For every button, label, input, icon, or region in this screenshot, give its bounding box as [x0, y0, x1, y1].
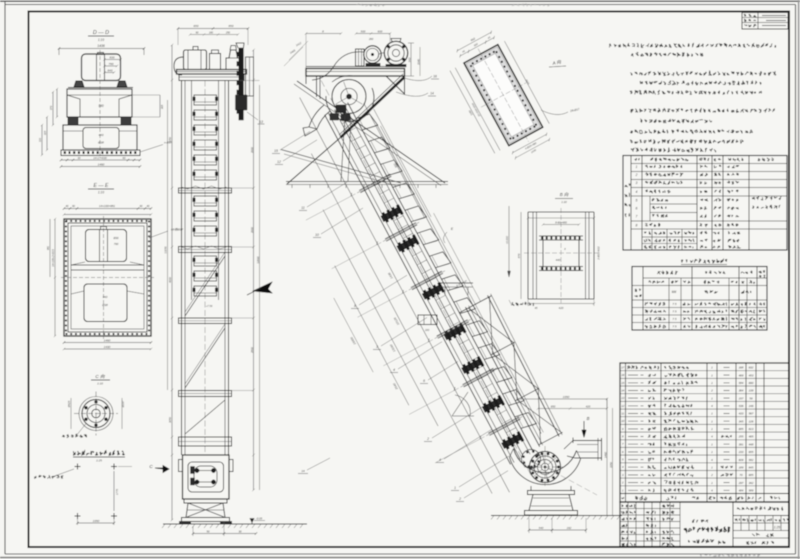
svg-text:180: 180 — [209, 32, 214, 35]
svg-text:139: 139 — [749, 389, 754, 393]
svg-text:1050: 1050 — [563, 395, 570, 399]
svg-text:189: 189 — [739, 465, 744, 469]
svg-text:940: 940 — [98, 104, 104, 108]
svg-text:7.5: 7.5 — [672, 302, 677, 306]
svg-text:15: 15 — [621, 381, 625, 385]
svg-text:640: 640 — [107, 69, 112, 73]
svg-text:110: 110 — [38, 137, 42, 142]
svg-text:433: 433 — [739, 412, 744, 416]
svg-text:2: 2 — [621, 481, 624, 485]
svg-text:255: 255 — [738, 435, 744, 439]
svg-text:315: 315 — [43, 130, 47, 135]
svg-text:2800: 2800 — [250, 347, 254, 354]
svg-text:685: 685 — [749, 473, 754, 477]
svg-text:1: 1 — [636, 165, 638, 169]
svg-text:14×100=981: 14×100=981 — [99, 204, 116, 208]
svg-text:16: 16 — [621, 373, 625, 377]
svg-text:15: 15 — [274, 149, 278, 153]
svg-text:567: 567 — [749, 412, 754, 416]
svg-text:500: 500 — [361, 30, 366, 34]
svg-text:8-60=480: 8-60=480 — [555, 221, 567, 225]
svg-text:+7.56: +7.56 — [206, 304, 213, 308]
svg-text:1775: 1775 — [115, 488, 119, 495]
svg-text:440: 440 — [98, 133, 103, 137]
svg-text:830: 830 — [109, 56, 114, 60]
svg-text:59: 59 — [749, 396, 753, 400]
svg-text:30: 30 — [238, 530, 242, 534]
svg-text:Ø425: Ø425 — [67, 400, 71, 408]
svg-text:345: 345 — [739, 419, 744, 423]
svg-text:14×100+2×93.5: 14×100+2×93.5 — [52, 249, 55, 267]
svg-text:440: 440 — [556, 258, 561, 262]
svg-text:2: 2 — [426, 437, 429, 441]
svg-text:1:25: 1:25 — [96, 459, 102, 463]
svg-text:1490: 1490 — [104, 339, 111, 343]
svg-text:609: 609 — [739, 458, 744, 462]
svg-text:kW: kW — [672, 290, 677, 294]
svg-text:14: 14 — [430, 92, 434, 96]
svg-text:1050: 1050 — [609, 462, 613, 468]
svg-text:8: 8 — [636, 224, 638, 228]
svg-text:465: 465 — [749, 435, 754, 439]
svg-text:790: 790 — [108, 62, 113, 66]
svg-text:7: 7 — [636, 215, 638, 219]
svg-text:305: 305 — [160, 104, 164, 109]
svg-text:650: 650 — [193, 24, 198, 28]
svg-text:7.5: 7.5 — [672, 310, 677, 314]
svg-text:11: 11 — [301, 206, 305, 210]
svg-text:14: 14 — [301, 469, 305, 473]
svg-text:6: 6 — [636, 207, 638, 211]
svg-text:1050: 1050 — [93, 519, 100, 523]
svg-text:4050: 4050 — [168, 137, 172, 143]
svg-text:1:25: 1:25 — [774, 526, 781, 530]
svg-text:420: 420 — [559, 306, 564, 310]
svg-text:584: 584 — [739, 381, 744, 385]
svg-text:6: 6 — [423, 379, 425, 383]
svg-text:157: 157 — [739, 396, 744, 400]
svg-text:2: 2 — [458, 497, 461, 501]
svg-text:11: 11 — [621, 412, 624, 416]
svg-text:1:10: 1:10 — [561, 200, 567, 204]
svg-text:685: 685 — [739, 427, 744, 431]
svg-text:B 向: B 向 — [560, 192, 569, 197]
svg-text:1436: 1436 — [97, 44, 105, 48]
svg-text:17: 17 — [621, 365, 625, 369]
svg-text:3050: 3050 — [168, 417, 172, 423]
svg-text:14: 14 — [621, 389, 625, 393]
svg-text:70: 70 — [739, 473, 743, 477]
svg-text:50: 50 — [206, 530, 210, 534]
svg-text:4: 4 — [393, 368, 395, 372]
svg-text:Ø38: Ø38 — [97, 141, 104, 145]
svg-text:1040: 1040 — [417, 59, 421, 65]
svg-text:582: 582 — [749, 458, 754, 462]
svg-text:280: 280 — [368, 37, 374, 41]
svg-text:5: 5 — [636, 199, 638, 203]
svg-text:690: 690 — [749, 381, 754, 385]
svg-text:632: 632 — [749, 366, 754, 370]
svg-text:±0.000: ±0.000 — [505, 235, 509, 243]
svg-text:870: 870 — [517, 253, 521, 258]
svg-text:168: 168 — [739, 366, 744, 370]
svg-text:14-17=930: 14-17=930 — [93, 156, 107, 160]
svg-text:1460: 1460 — [604, 451, 608, 458]
svg-text:1: 1 — [454, 486, 456, 490]
svg-text:13: 13 — [621, 396, 625, 400]
svg-text:2: 2 — [710, 389, 713, 393]
svg-text:13150: 13150 — [164, 246, 168, 254]
svg-text:4000: 4000 — [168, 277, 172, 283]
svg-text:Ø30: Ø30 — [112, 236, 119, 240]
svg-text:364: 364 — [739, 389, 744, 393]
svg-text:12: 12 — [277, 160, 281, 164]
svg-text:16: 16 — [433, 75, 437, 79]
svg-text:146: 146 — [749, 404, 754, 408]
svg-text:589: 589 — [749, 489, 754, 493]
svg-text:613: 613 — [749, 427, 754, 431]
svg-text:469: 469 — [739, 373, 744, 377]
svg-text:391: 391 — [739, 442, 744, 446]
svg-text:790: 790 — [114, 242, 119, 246]
svg-text:Ø197: Ø197 — [121, 400, 125, 408]
svg-text:12000: 12000 — [256, 256, 260, 264]
svg-text:-0.05: -0.05 — [256, 517, 263, 521]
svg-text:2000: 2000 — [250, 227, 254, 234]
svg-text:297: 297 — [738, 481, 744, 485]
svg-text:233: 233 — [738, 450, 744, 454]
svg-text:180: 180 — [425, 328, 430, 332]
svg-text:D — D: D — D — [93, 30, 109, 36]
svg-text:12: 12 — [621, 404, 625, 408]
svg-text:7.5: 7.5 — [672, 325, 677, 329]
svg-text:484: 484 — [739, 489, 744, 493]
svg-text:448: 448 — [749, 442, 754, 446]
svg-text:981: 981 — [47, 245, 50, 250]
svg-text:1490: 1490 — [98, 163, 105, 167]
svg-text:940: 940 — [103, 295, 108, 299]
svg-text:370: 370 — [49, 105, 53, 110]
svg-text:B: B — [587, 416, 590, 421]
svg-text:1:10: 1:10 — [98, 38, 104, 42]
svg-text:645: 645 — [749, 465, 754, 469]
svg-text:C 向: C 向 — [95, 374, 105, 379]
svg-text:3: 3 — [376, 345, 378, 349]
svg-text:850: 850 — [228, 24, 233, 28]
svg-text:7.5: 7.5 — [672, 317, 677, 321]
svg-text:540: 540 — [539, 526, 544, 530]
svg-text:2: 2 — [635, 173, 638, 177]
svg-text:10: 10 — [315, 233, 319, 237]
svg-text:162: 162 — [567, 526, 572, 530]
svg-text:655: 655 — [749, 450, 754, 454]
svg-text:E — E: E — E — [94, 183, 110, 189]
svg-text:3: 3 — [636, 181, 638, 185]
svg-text:1:10: 1:10 — [97, 382, 103, 386]
svg-text:342: 342 — [749, 481, 754, 485]
svg-text:250: 250 — [225, 32, 231, 35]
svg-text:4: 4 — [636, 190, 638, 194]
svg-text:2000: 2000 — [250, 147, 254, 154]
svg-text:650: 650 — [551, 405, 556, 409]
svg-text:4: 4 — [439, 458, 441, 462]
svg-text:Ø38: Ø38 — [101, 303, 108, 307]
svg-text:2-Ø23-M22: 2-Ø23-M22 — [597, 246, 601, 261]
svg-text:8: 8 — [354, 304, 356, 308]
svg-text:1:10: 1:10 — [98, 191, 104, 195]
svg-text:1430: 1430 — [104, 345, 111, 349]
svg-text:543: 543 — [408, 57, 412, 62]
svg-text:420: 420 — [586, 405, 591, 409]
svg-text:126: 126 — [749, 419, 754, 423]
svg-text:600: 600 — [378, 30, 383, 34]
svg-text:453: 453 — [749, 373, 754, 377]
svg-text:536: 536 — [739, 404, 744, 408]
svg-text:2: 2 — [710, 473, 713, 477]
svg-text:10: 10 — [621, 419, 625, 423]
